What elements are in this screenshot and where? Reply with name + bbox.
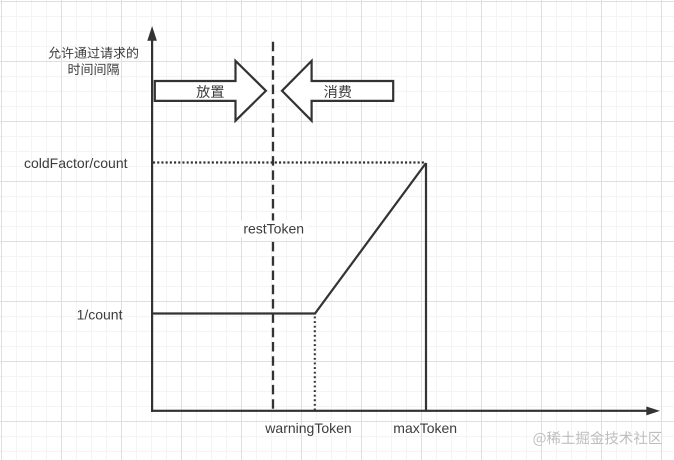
svg-text:1/count: 1/count (77, 307, 123, 323)
svg-text:coldFactor/count: coldFactor/count (24, 155, 128, 171)
svg-text:maxToken: maxToken (393, 420, 457, 436)
svg-text:warningToken: warningToken (264, 420, 351, 436)
svg-text:restToken: restToken (243, 220, 304, 236)
